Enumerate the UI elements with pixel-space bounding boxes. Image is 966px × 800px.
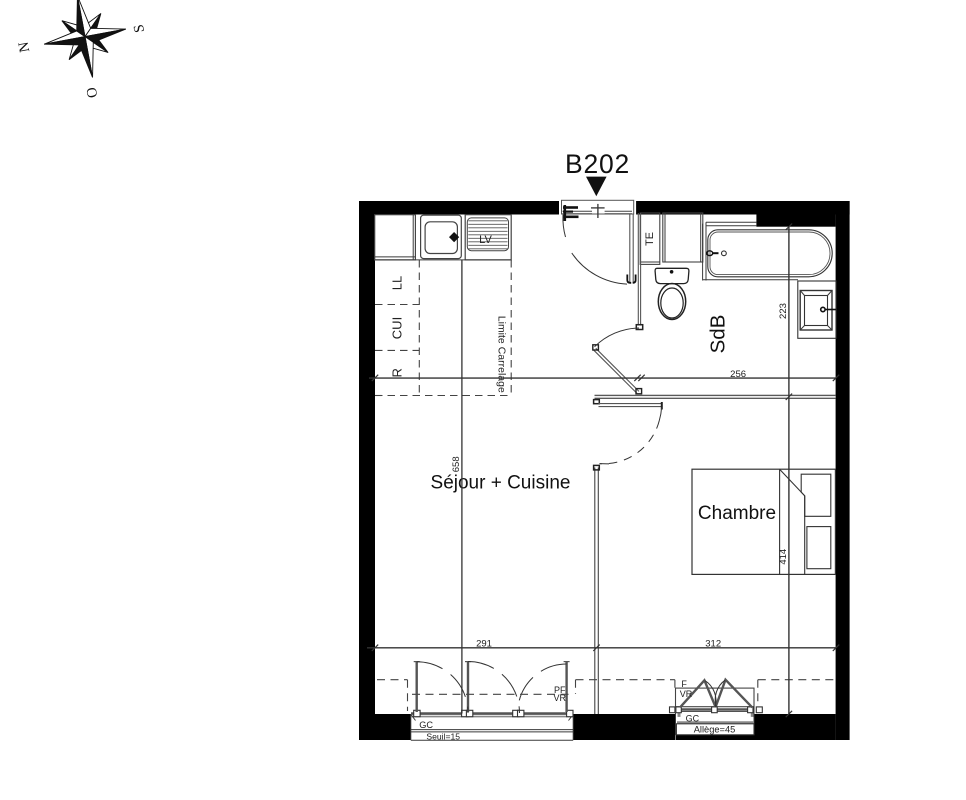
svg-text:291: 291 <box>476 638 492 649</box>
svg-text:R: R <box>390 368 405 377</box>
svg-text:223: 223 <box>778 303 789 319</box>
svg-text:Chambre: Chambre <box>698 503 776 524</box>
svg-text:CUI: CUI <box>390 317 405 339</box>
svg-text:GC: GC <box>419 720 433 730</box>
svg-text:658: 658 <box>451 456 462 472</box>
svg-text:GC: GC <box>686 713 700 723</box>
svg-text:SdB: SdB <box>706 315 729 354</box>
svg-text:414: 414 <box>778 549 789 565</box>
svg-text:Séjour + Cuisine: Séjour + Cuisine <box>431 473 571 494</box>
svg-text:LL: LL <box>390 276 405 290</box>
svg-text:B202: B202 <box>565 149 630 179</box>
svg-text:F: F <box>681 679 687 689</box>
svg-text:312: 312 <box>705 639 721 650</box>
svg-text:VR: VR <box>680 689 693 699</box>
svg-text:Limite Carrelage: Limite Carrelage <box>495 316 507 393</box>
svg-text:Seuil=15: Seuil=15 <box>426 731 460 741</box>
svg-text:Allège=45: Allège=45 <box>694 724 736 734</box>
svg-text:LV: LV <box>479 234 492 246</box>
svg-text:256: 256 <box>730 369 746 380</box>
svg-text:TE: TE <box>644 232 656 246</box>
